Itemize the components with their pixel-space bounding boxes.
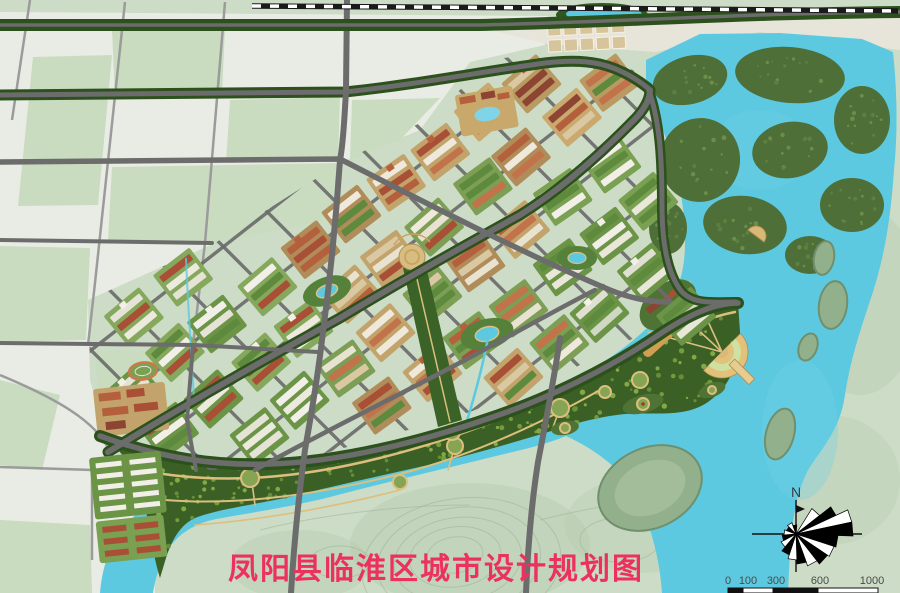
svg-text:600: 600 bbox=[811, 575, 829, 587]
southwest-residential bbox=[89, 451, 172, 564]
planning-map-canvas: N 0 100 300 600 1000 凤阳县临淮区城市设计规划图 bbox=[0, 0, 900, 593]
map-title: 凤阳县临淮区城市设计规划图 bbox=[228, 552, 644, 586]
school-campus bbox=[93, 382, 170, 437]
north-label: N bbox=[791, 484, 801, 500]
svg-text:100: 100 bbox=[739, 575, 757, 587]
planning-map-page: N 0 100 300 600 1000 凤阳县临淮区城市设计规划图 bbox=[0, 0, 900, 593]
svg-text:1000: 1000 bbox=[860, 575, 884, 587]
svg-text:0: 0 bbox=[725, 575, 731, 587]
svg-text:300: 300 bbox=[767, 575, 785, 587]
